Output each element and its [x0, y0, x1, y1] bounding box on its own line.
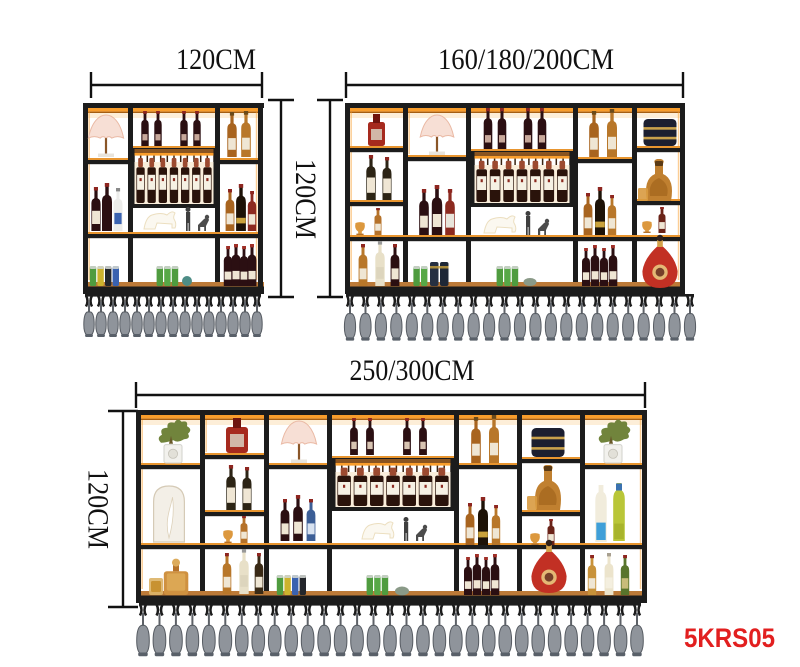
- svg-text:5KRS05: 5KRS05: [684, 623, 775, 653]
- svg-text:160/180/200CM: 160/180/200CM: [438, 43, 614, 76]
- svg-text:120CM: 120CM: [289, 159, 322, 239]
- svg-text:250/300CM: 250/300CM: [350, 354, 475, 387]
- svg-text:120CM: 120CM: [176, 43, 256, 76]
- svg-text:120CM: 120CM: [82, 469, 115, 549]
